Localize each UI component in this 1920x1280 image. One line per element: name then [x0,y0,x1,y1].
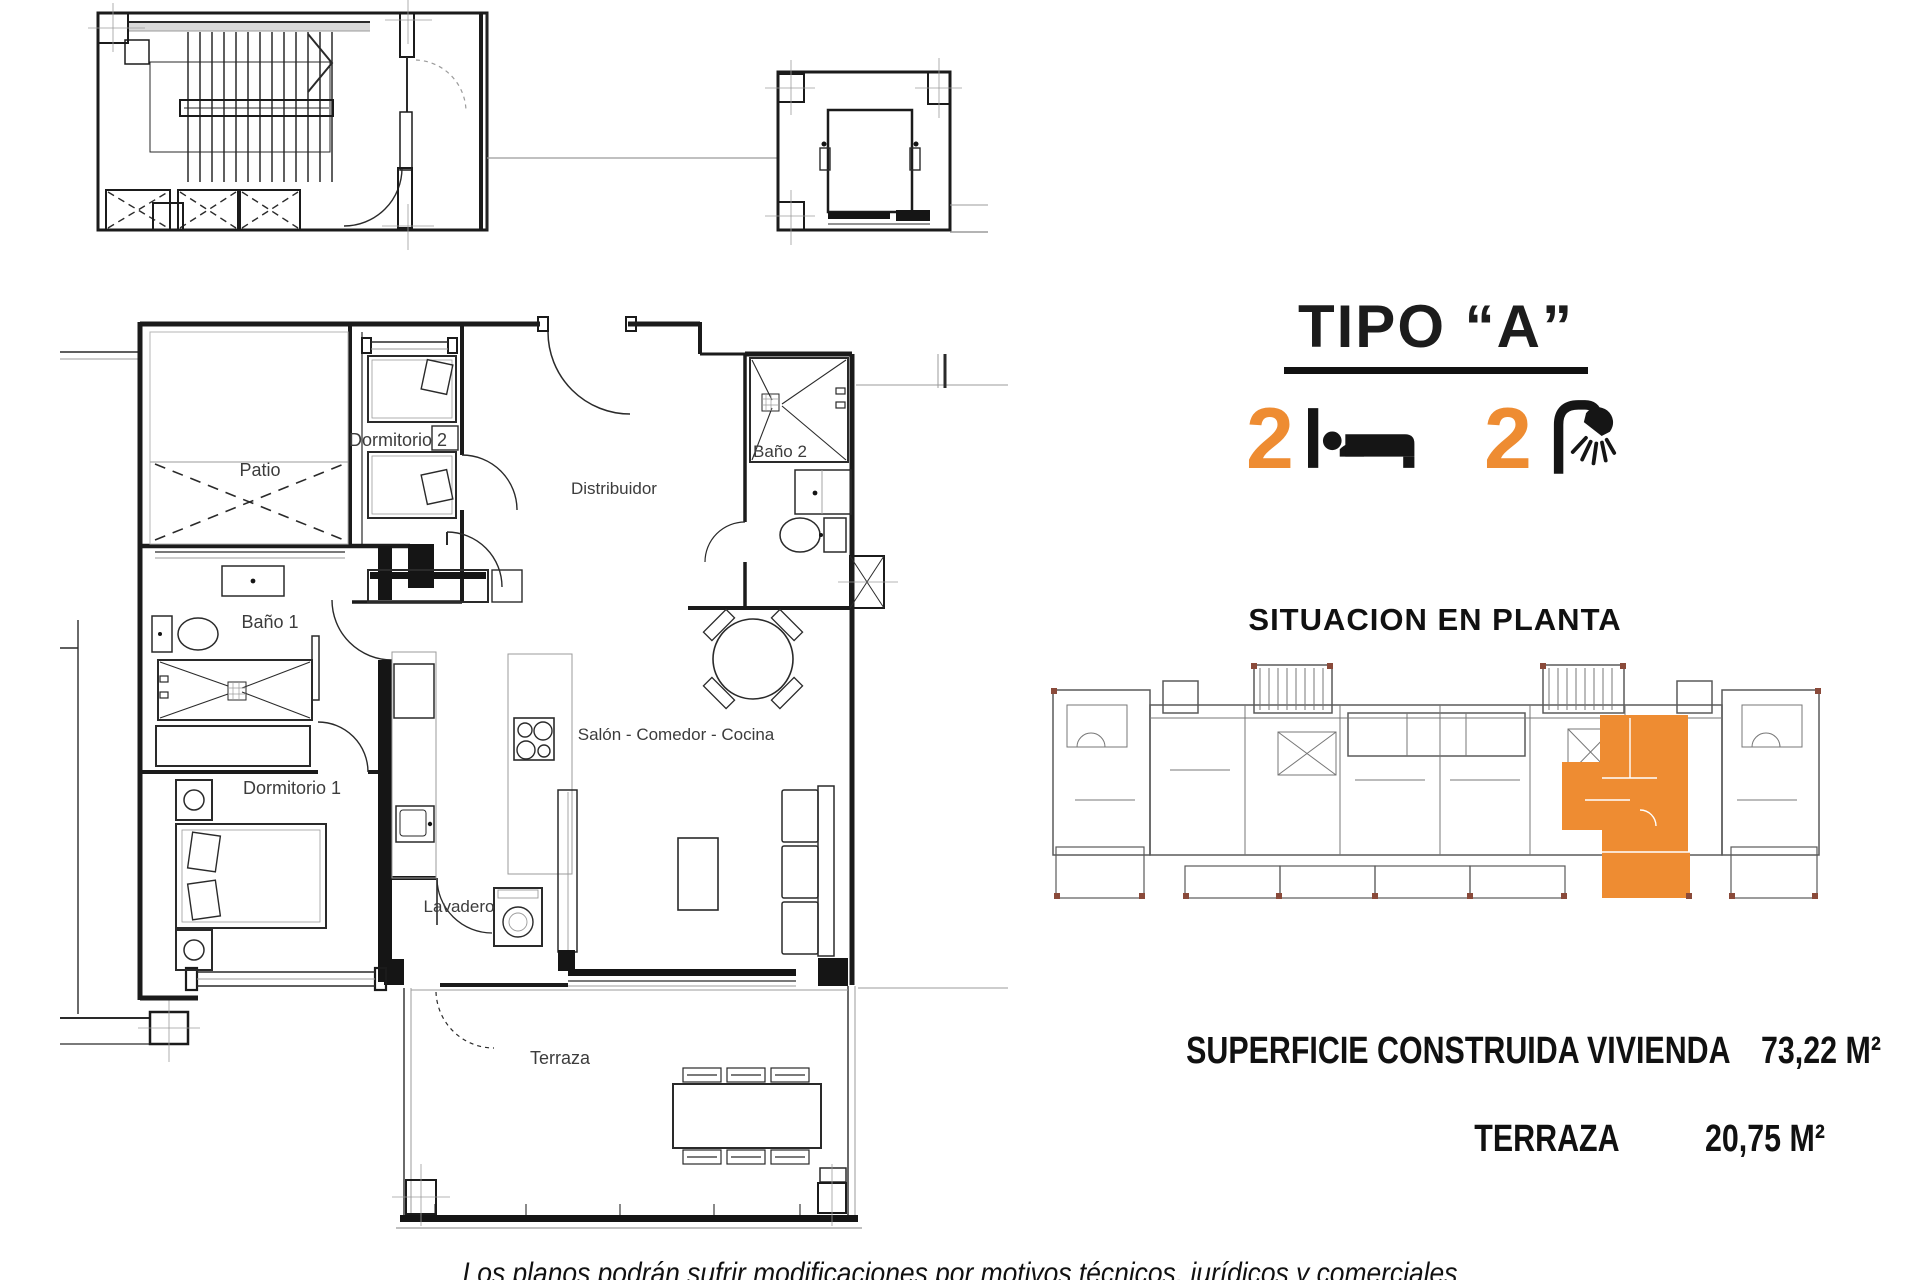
construida-value: 73,22 M² [1761,1030,1881,1073]
distribuidor: Distribuidor [571,479,657,498]
apartment-floor-plan: Patio Dormitorio 2 [0,0,1010,1280]
bano-2: Baño 2 [750,358,851,552]
room-label-patio: Patio [239,460,280,480]
terraza: Terraza [392,986,862,1228]
bathroom-count: 2 [1484,396,1532,482]
unit-type-title-wrap: TIPO “A” [1240,292,1632,374]
room-label-bano2: Baño 2 [753,442,807,461]
shower-icon [1552,398,1618,474]
lavadero: Lavadero [424,888,542,946]
room-label-dormitorio1: Dormitorio 1 [243,778,341,798]
room-label-salon: Salón - Comedor - Cocina [578,725,775,744]
elevator-detail [765,58,988,245]
room-label-distribuidor: Distribuidor [571,479,657,498]
room-label-dormitorio2: Dormitorio 2 [349,430,447,450]
terraza-label: TERRAZA [1475,1118,1620,1161]
stairwell-detail [88,0,778,250]
patio: Patio [150,332,348,544]
room-label-bano1: Baño 1 [241,612,298,632]
area-row-terraza: TERRAZA 20,75 M² [1050,1118,1825,1161]
construida-label: SUPERFICIE CONSTRUIDA VIVIENDA [1186,1030,1730,1073]
floor-plan-sheet: Patio Dormitorio 2 [0,0,1920,1280]
unit-type-title: TIPO “A” [1284,292,1588,374]
bedroom-count: 2 [1246,396,1294,482]
bano-1: Baño 1 [152,552,345,766]
stairwell-duct-boxes [106,190,300,230]
room-label-terraza: Terraza [530,1048,591,1068]
disclaimer-text: Los planos podrán sufrir modificaciones … [463,1257,1458,1280]
room-label-lavadero: Lavadero [424,897,495,916]
unit-walls [140,317,852,1000]
situacion-heading: SITUACION EN PLANTA [1235,602,1635,638]
highlighted-unit [1562,715,1688,852]
situacion-building-plan [1045,660,1825,905]
dormitorio-1: Dormitorio 1 [176,778,341,970]
area-row-construida: SUPERFICIE CONSTRUIDA VIVIENDA 73,22 M² [1050,1030,1825,1073]
bed-icon [1308,408,1420,468]
terraza-value: 20,75 M² [1705,1118,1825,1161]
highlighted-unit-terrace [1602,852,1690,898]
